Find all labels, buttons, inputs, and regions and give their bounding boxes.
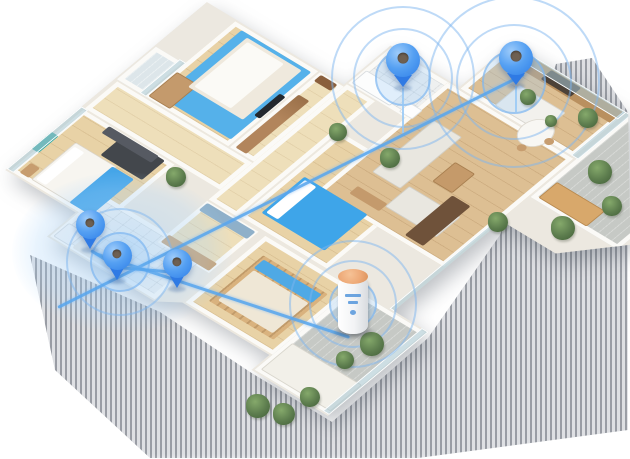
plant bbox=[300, 387, 320, 407]
smart-hub-device[interactable] bbox=[338, 276, 368, 334]
pin-laundry[interactable] bbox=[76, 210, 105, 249]
pin-bathroom-2[interactable] bbox=[103, 241, 132, 280]
pin-hole bbox=[85, 218, 94, 227]
device-logo-dot bbox=[350, 310, 356, 315]
plant bbox=[488, 212, 508, 232]
device-label-line bbox=[348, 301, 359, 304]
plant bbox=[551, 216, 575, 240]
pin-head bbox=[386, 43, 420, 77]
plant bbox=[578, 108, 598, 128]
pin-hallway[interactable] bbox=[163, 249, 192, 288]
floorplan-scene bbox=[0, 0, 630, 459]
pin-head bbox=[76, 210, 105, 239]
pin-head bbox=[163, 249, 192, 278]
pin-hole bbox=[398, 53, 409, 64]
plant bbox=[520, 89, 536, 105]
device-body bbox=[338, 276, 368, 334]
plant bbox=[588, 160, 612, 184]
annotation-overlay bbox=[0, 0, 630, 459]
plant bbox=[166, 167, 186, 187]
pin-kitchen[interactable] bbox=[499, 41, 533, 85]
plant bbox=[602, 196, 622, 216]
plant bbox=[545, 115, 557, 127]
pin-hole bbox=[112, 249, 121, 258]
signal-drop-line bbox=[515, 86, 517, 112]
pin-head bbox=[499, 41, 533, 75]
plant bbox=[380, 148, 400, 168]
plant bbox=[329, 123, 347, 141]
plant bbox=[273, 403, 295, 425]
plant bbox=[246, 394, 270, 418]
pin-bathroom[interactable] bbox=[386, 43, 420, 87]
plant bbox=[336, 351, 354, 369]
pin-hole bbox=[172, 257, 181, 266]
device-cap bbox=[338, 269, 368, 284]
device-label-line bbox=[345, 294, 362, 297]
signal-drop-line bbox=[402, 88, 404, 133]
pin-hole bbox=[511, 51, 522, 62]
pin-head bbox=[103, 241, 132, 270]
